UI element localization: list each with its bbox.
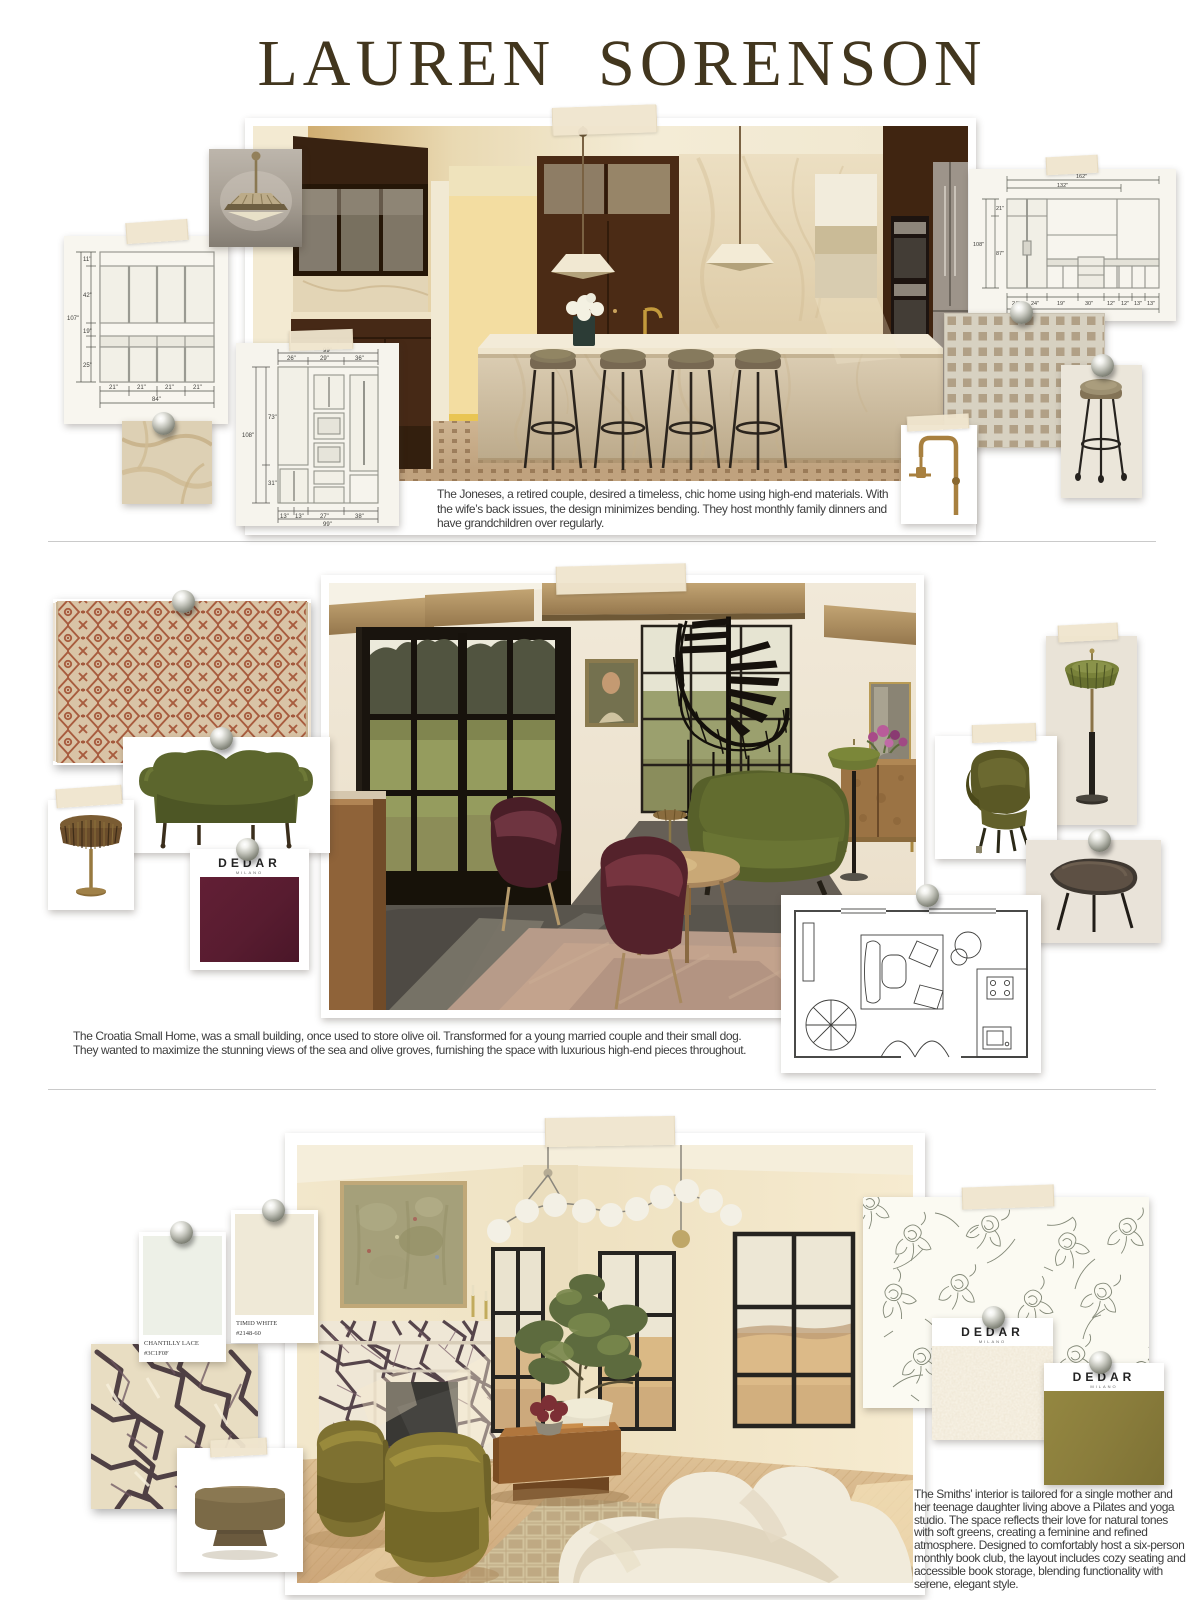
svg-text:12": 12" <box>1121 301 1129 307</box>
svg-text:42": 42" <box>83 293 92 299</box>
svg-text:29": 29" <box>320 356 329 362</box>
svg-text:27": 27" <box>320 514 329 520</box>
svg-text:38": 38" <box>355 514 364 520</box>
svg-text:24": 24" <box>1031 301 1039 307</box>
svg-text:99": 99" <box>323 522 332 526</box>
svg-text:21": 21" <box>109 385 118 391</box>
svg-text:84": 84" <box>152 397 161 403</box>
svg-text:21": 21" <box>137 385 146 391</box>
svg-text:19": 19" <box>1057 301 1065 307</box>
svg-text:13": 13" <box>295 514 304 520</box>
svg-text:11": 11" <box>83 257 91 263</box>
svg-text:21": 21" <box>165 385 174 391</box>
svg-text:13": 13" <box>1147 301 1155 307</box>
svg-text:13": 13" <box>280 514 289 520</box>
svg-text:36": 36" <box>355 356 364 362</box>
svg-text:12": 12" <box>1107 301 1115 307</box>
svg-text:21": 21" <box>193 385 202 391</box>
svg-text:162": 162" <box>1076 174 1087 180</box>
svg-text:26": 26" <box>287 356 296 362</box>
svg-text:31": 31" <box>268 481 277 487</box>
svg-text:73": 73" <box>268 415 277 421</box>
svg-text:21": 21" <box>996 206 1004 212</box>
svg-text:132": 132" <box>1057 183 1068 189</box>
svg-text:87": 87" <box>996 251 1004 257</box>
svg-text:19": 19" <box>83 329 92 335</box>
svg-text:107": 107" <box>67 316 79 322</box>
svg-text:25": 25" <box>83 363 92 369</box>
svg-text:108": 108" <box>242 433 254 439</box>
svg-text:108": 108" <box>973 242 984 248</box>
svg-text:13": 13" <box>1134 301 1142 307</box>
svg-text:30": 30" <box>1085 301 1093 307</box>
